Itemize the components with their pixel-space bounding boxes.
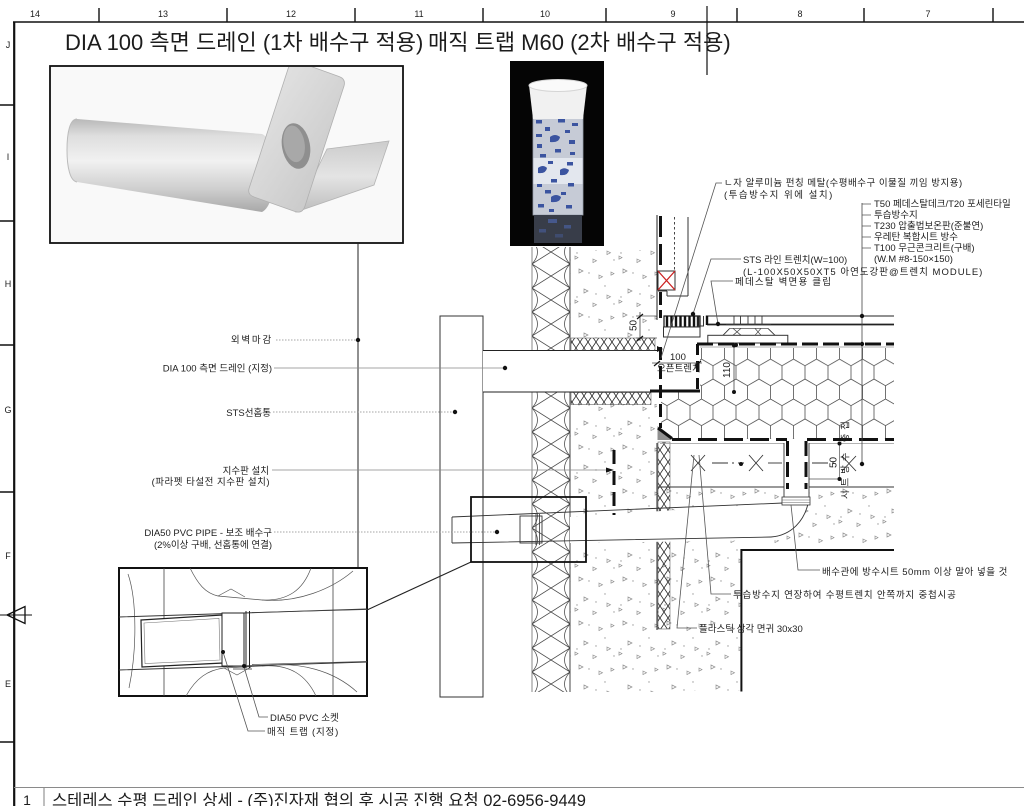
svg-text:DIA 100 측면 드레인 (지정): DIA 100 측면 드레인 (지정) <box>163 364 272 375</box>
svg-text:G: G <box>4 405 11 415</box>
svg-text:T50 페데스탈데크/T20 포세린타일: T50 페데스탈데크/T20 포세린타일 <box>874 198 1011 210</box>
svg-text:지수판 설치: 지수판 설치 <box>223 465 269 477</box>
svg-text:매직 트랩 (지정): 매직 트랩 (지정) <box>267 726 339 738</box>
svg-text:1: 1 <box>23 792 31 806</box>
svg-text:DIA50 PVC 소켓: DIA50 PVC 소켓 <box>270 713 339 724</box>
svg-text:(W.M #8-150×150): (W.M #8-150×150) <box>874 254 953 265</box>
svg-text:E: E <box>5 679 11 689</box>
svg-text:14: 14 <box>30 9 40 19</box>
svg-text:110: 110 <box>722 362 733 378</box>
svg-text:DIA 100 측면 드레인 (1차 배수구 적용): DIA 100 측면 드레인 (1차 배수구 적용) <box>65 30 423 55</box>
svg-text:투습방수지 연장하여 수평트렌치 안쪽까지 중첩시공: 투습방수지 연장하여 수평트렌치 안쪽까지 중첩시공 <box>733 589 957 601</box>
svg-text:T100 무근콘크리트(구배): T100 무근콘크리트(구배) <box>874 243 975 254</box>
svg-text:스테레스 수평 드레인 상세 - (주)진자재 협의 후 시: 스테레스 수평 드레인 상세 - (주)진자재 협의 후 시공 진행 요청 02… <box>52 791 586 806</box>
svg-text:(파라펫 타설전 지수판 설치): (파라펫 타설전 지수판 설치) <box>152 476 270 488</box>
svg-text:플라스틱 삼각 면귀 30x30: 플라스틱 삼각 면귀 30x30 <box>699 623 803 635</box>
svg-text:13: 13 <box>158 9 168 19</box>
svg-text:우레탄 복합시트 방수: 우레탄 복합시트 방수 <box>874 232 958 243</box>
svg-text:투습방수지: 투습방수지 <box>874 210 918 221</box>
svg-text:시트방수 중첩: 시트방수 중첩 <box>841 417 852 499</box>
svg-text:매직 트랩 M60 (2차 배수구 적용): 매직 트랩 M60 (2차 배수구 적용) <box>428 30 731 55</box>
svg-text:DIA50 PVC PIPE - 보조 배수구: DIA50 PVC PIPE - 보조 배수구 <box>144 528 272 539</box>
svg-text:9: 9 <box>670 9 675 19</box>
svg-text:STS선홈통: STS선홈통 <box>226 407 271 419</box>
svg-text:I: I <box>7 152 10 162</box>
svg-text:H: H <box>5 279 12 289</box>
svg-text:7: 7 <box>925 9 930 19</box>
svg-text:50: 50 <box>829 456 840 468</box>
svg-text:STS 라인 트렌치(W=100): STS 라인 트렌치(W=100) <box>743 254 847 266</box>
svg-text:외벽마감: 외벽마감 <box>231 334 273 346</box>
svg-text:100: 100 <box>670 352 686 363</box>
svg-text:(투습방수지 위에 설치): (투습방수지 위에 설치) <box>724 189 834 201</box>
svg-text:페데스탈 벽면용 클립: 페데스탈 벽면용 클립 <box>735 276 832 288</box>
svg-text:F: F <box>5 551 11 561</box>
svg-text:T230 압출법보온판(준불연): T230 압출법보온판(준불연) <box>874 220 983 232</box>
svg-text:50: 50 <box>629 319 640 331</box>
svg-text:10: 10 <box>540 9 550 19</box>
svg-text:12: 12 <box>286 9 296 19</box>
svg-text:배수관에 방수시트 50mm 이상 말아 넣을 것: 배수관에 방수시트 50mm 이상 말아 넣을 것 <box>822 566 1008 578</box>
svg-text:ㄴ자 알루미늄 펀칭 메탈(수평배수구 이물질 끼임 방지용: ㄴ자 알루미늄 펀칭 메탈(수평배수구 이물질 끼임 방지용) <box>724 177 963 189</box>
svg-text:J: J <box>6 40 11 50</box>
svg-text:(2%이상 구배, 선홈통에 연결): (2%이상 구배, 선홈통에 연결) <box>154 539 272 551</box>
svg-text:오픈트렌치: 오픈트렌치 <box>657 363 701 375</box>
svg-text:8: 8 <box>797 9 802 19</box>
svg-text:11: 11 <box>414 9 423 19</box>
